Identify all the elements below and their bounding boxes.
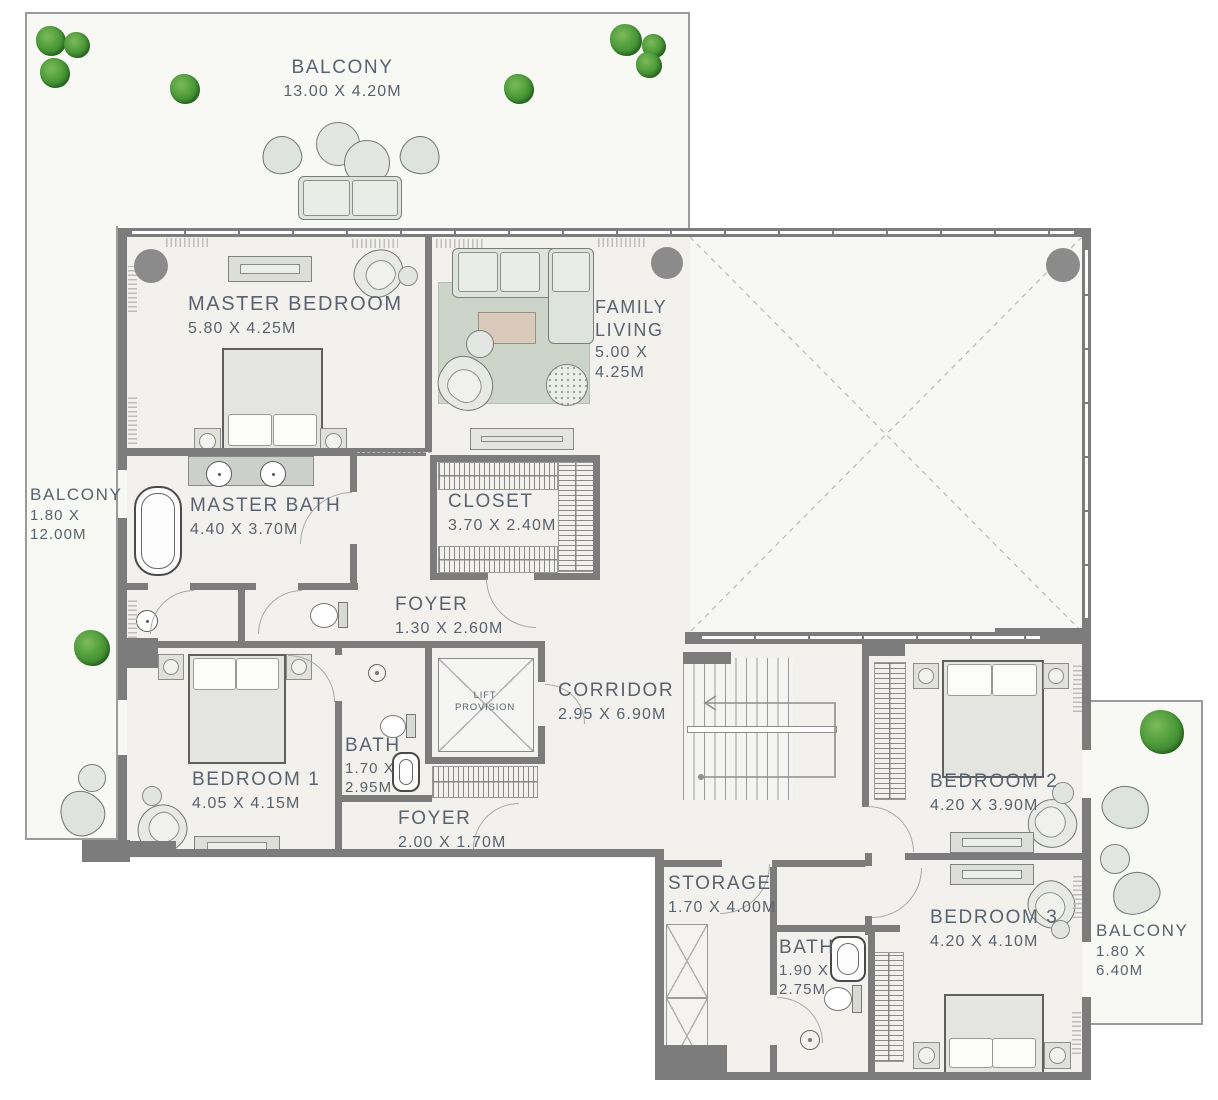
- curtain-icon: [598, 238, 646, 247]
- door-opening: [538, 682, 545, 726]
- wall: [238, 590, 245, 645]
- wardrobe-hatch: [438, 546, 558, 573]
- plant-icon: [170, 74, 200, 104]
- door-opening: [865, 866, 872, 916]
- wall: [664, 860, 722, 867]
- sofa-cushion: [352, 180, 398, 216]
- room-label-bedroom-3: BEDROOM 3 4.20 X 4.10M: [930, 906, 1090, 952]
- plant-icon: [64, 32, 90, 58]
- room-label-foyer-upper: FOYER 1.30 X 2.60M: [395, 593, 515, 639]
- column-marker: [134, 249, 168, 283]
- wall: [425, 648, 432, 757]
- dresser-symbol: [950, 864, 1034, 885]
- wall: [655, 1045, 727, 1078]
- storage-cabinet-symbol: [666, 924, 708, 998]
- plant-icon: [74, 630, 110, 666]
- console-symbol: [470, 428, 574, 450]
- curtain-icon: [1073, 664, 1082, 712]
- plant-icon: [636, 52, 662, 78]
- sink-icon: [206, 461, 232, 487]
- curtain-icon: [128, 598, 137, 638]
- curtain-icon: [436, 239, 484, 248]
- wall: [127, 641, 545, 648]
- wall: [862, 641, 869, 807]
- pillow: [947, 664, 992, 696]
- pillow: [273, 414, 317, 446]
- door-opening: [148, 583, 190, 590]
- window: [700, 636, 1040, 639]
- room-label-closet: CLOSET 3.70 X 2.40M: [448, 490, 568, 536]
- void-dashed-x-icon: [690, 237, 1082, 632]
- wall: [425, 237, 432, 452]
- room-label-bath-2: BATH 1.90 X 2.75M: [779, 936, 843, 999]
- pillow: [193, 658, 236, 690]
- nightstand-symbol: [913, 663, 939, 689]
- shower-icon: [368, 664, 386, 682]
- plant-icon: [36, 26, 66, 56]
- room-label-bedroom-1: BEDROOM 1 4.05 X 4.15M: [192, 768, 352, 814]
- nightstand-symbol: [1044, 1042, 1071, 1069]
- plant-icon: [610, 24, 642, 56]
- wardrobe-hatch: [874, 662, 906, 800]
- door-opening: [770, 995, 777, 1045]
- pillow: [992, 664, 1037, 696]
- wall: [593, 455, 600, 580]
- room-label-master-bath: MASTER BATH 4.40 X 3.70M: [190, 494, 390, 540]
- lift-label: LIFT PROVISION: [438, 690, 532, 715]
- room-label-balcony-top: BALCONY 13.00 X 4.20M: [270, 56, 415, 102]
- side-table-symbol: [398, 266, 418, 286]
- pillow: [236, 658, 279, 690]
- wall: [118, 849, 664, 857]
- side-table-symbol: [142, 786, 162, 806]
- nightstand-symbol: [1043, 663, 1069, 689]
- wall: [120, 638, 158, 668]
- dresser-symbol: [228, 256, 312, 282]
- pillow: [949, 1038, 993, 1068]
- curtain-icon: [128, 396, 137, 444]
- sofa-cushion: [458, 252, 498, 292]
- column-marker: [651, 247, 683, 279]
- room-label-foyer-lower: FOYER 2.00 X 1.70M: [398, 807, 528, 853]
- wall: [430, 455, 600, 462]
- window: [1085, 250, 1088, 620]
- nightstand-symbol: [913, 1042, 940, 1069]
- room-label-balcony-left: BALCONY 1.80 X 12.00M: [30, 484, 125, 545]
- floor-plan: LIFT PROVISION: [0, 0, 1218, 1100]
- sofa-cushion: [552, 252, 590, 292]
- window-opening: [118, 700, 127, 755]
- wall: [868, 925, 875, 1072]
- wardrobe-hatch: [874, 952, 904, 1062]
- wall: [770, 925, 900, 932]
- round-table-symbol: [1100, 844, 1130, 874]
- room-label-bedroom-2: BEDROOM 2 4.20 X 3.90M: [930, 770, 1090, 816]
- wall: [683, 652, 731, 664]
- window: [130, 231, 1074, 234]
- room-label-family-living: FAMILY LIVING 5.00 X 4.25M: [595, 296, 683, 383]
- sink-icon: [260, 461, 286, 487]
- pillow: [228, 414, 272, 446]
- wall: [430, 455, 437, 580]
- wall: [772, 860, 865, 867]
- room-label-bath-1: BATH 1.70 X 2.95M: [345, 734, 407, 797]
- room-label-balcony-right: BALCONY 1.80 X 6.40M: [1096, 920, 1196, 981]
- round-table-symbol: [466, 330, 494, 358]
- wall: [425, 757, 545, 764]
- plant-icon: [1140, 710, 1184, 754]
- curtain-icon: [352, 239, 398, 248]
- door-opening: [256, 583, 298, 590]
- stair-direction-arrow-icon: [683, 658, 859, 800]
- dashed-boundary: [357, 452, 431, 453]
- door-opening: [335, 655, 342, 701]
- sofa-cushion: [500, 252, 540, 292]
- wardrobe-hatch: [438, 462, 558, 490]
- column-marker: [1046, 248, 1080, 282]
- bathtub-symbol: [134, 486, 182, 576]
- room-label-corridor: CORRIDOR 2.95 X 6.90M: [558, 679, 688, 725]
- pouf-symbol: [546, 364, 588, 406]
- pillow: [992, 1038, 1036, 1068]
- dresser-symbol: [950, 832, 1034, 853]
- curtain-icon: [1072, 1010, 1081, 1054]
- toilet-icon: [310, 600, 350, 628]
- plant-icon: [504, 74, 534, 104]
- room-label-storage: STORAGE 1.70 X 4.00M: [668, 872, 798, 918]
- wall: [905, 853, 1082, 860]
- room-label-master-bedroom: MASTER BEDROOM 5.80 X 4.25M: [188, 292, 428, 339]
- curtain-icon: [166, 238, 210, 247]
- plant-icon: [40, 58, 70, 88]
- round-table-symbol: [78, 764, 106, 792]
- wardrobe-hatch: [432, 766, 538, 798]
- nightstand-symbol: [158, 654, 184, 680]
- sofa-cushion: [303, 180, 350, 216]
- wall: [118, 841, 176, 857]
